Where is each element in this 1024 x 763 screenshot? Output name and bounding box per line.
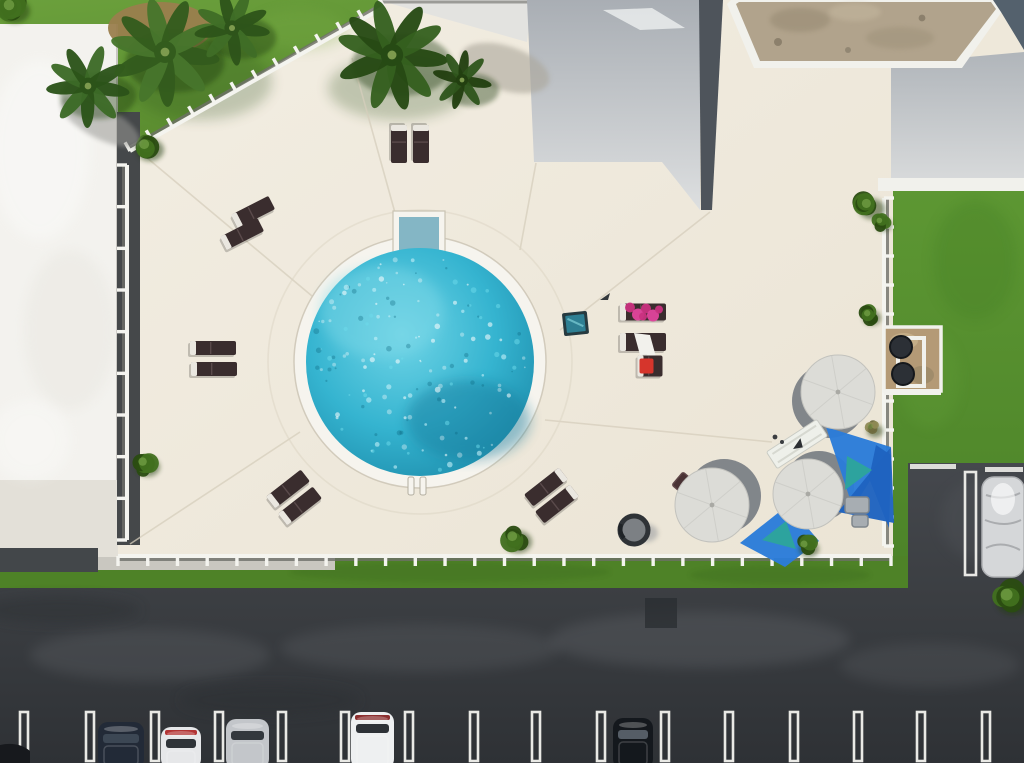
car-windshield — [103, 734, 139, 743]
sparkle — [418, 336, 420, 338]
sparkle — [365, 322, 368, 325]
sparkle — [406, 419, 408, 421]
car — [98, 722, 144, 763]
sparkle — [476, 445, 480, 449]
sparkle — [498, 384, 502, 388]
sparkle — [399, 431, 403, 435]
palm-crown-center — [85, 83, 92, 90]
sparkle — [442, 259, 444, 261]
sparkle — [388, 315, 390, 317]
sparkle — [453, 301, 457, 305]
lounge-chair — [636, 356, 663, 379]
sparkle — [512, 366, 516, 370]
lounger-headrest — [620, 333, 626, 351]
palm-crown-center — [161, 48, 170, 57]
bush-highlight — [507, 531, 517, 541]
car — [351, 712, 394, 763]
asphalt-patch — [645, 598, 677, 628]
sparkle — [467, 304, 469, 306]
aerial-photo-canvas — [0, 0, 1024, 763]
walkway-left — [0, 480, 118, 557]
car-hood-highlight — [619, 722, 647, 728]
sparkle — [329, 319, 332, 322]
umbrella-pole — [710, 503, 715, 508]
patio-umbrella — [801, 355, 875, 429]
side-table — [562, 311, 589, 336]
sparkle — [479, 316, 482, 319]
lounge-chair — [618, 303, 666, 323]
fire-pit — [620, 516, 648, 544]
sparkle — [522, 356, 525, 359]
sparkle — [455, 432, 458, 435]
sparkle — [386, 441, 390, 445]
sparkle — [488, 322, 493, 327]
palm-crown-center — [229, 25, 235, 31]
kettle-grill — [892, 363, 914, 385]
bush-highlight — [801, 541, 808, 548]
sparkle — [382, 395, 387, 400]
sparkle — [424, 423, 427, 426]
car-roof — [232, 743, 263, 763]
tarp-highlight — [991, 483, 1015, 515]
sparkle — [387, 409, 392, 414]
small-dot — [780, 440, 784, 444]
sparkle — [411, 258, 415, 262]
kettle-grill — [890, 336, 912, 358]
car-windshield — [618, 730, 648, 739]
umbrella-pole — [836, 390, 841, 395]
sparkle — [358, 316, 363, 321]
sparkle — [371, 449, 375, 453]
lounger-headrest — [391, 125, 407, 131]
bush — [0, 0, 30, 23]
sparkle — [375, 303, 377, 305]
sparkle — [344, 327, 348, 331]
sparkle — [415, 337, 417, 339]
sparkle — [464, 353, 468, 357]
sparkle — [320, 368, 323, 371]
sparkle — [447, 462, 453, 468]
bush-highlight — [1001, 589, 1013, 601]
sparkle — [461, 310, 464, 313]
sparkle — [389, 366, 393, 370]
sparkle — [460, 333, 464, 337]
lounge-chair — [188, 341, 236, 357]
sparkle — [321, 320, 324, 323]
sparkle — [345, 352, 349, 356]
sparkle — [380, 263, 382, 265]
sparkle — [315, 366, 319, 370]
sparkle — [325, 380, 327, 382]
lounge-chair — [411, 123, 429, 163]
parking-stall-line-horizontal — [910, 464, 956, 469]
sparkle — [427, 382, 432, 387]
sparkle — [435, 387, 441, 393]
sparkle — [375, 442, 380, 447]
car — [613, 718, 653, 763]
car-roof — [357, 736, 388, 763]
sparkle — [373, 353, 375, 355]
walkway-shadow — [0, 548, 98, 572]
sparkle — [402, 444, 407, 449]
sparkle — [457, 452, 462, 457]
sparkle — [417, 300, 419, 302]
sparkle — [436, 313, 439, 316]
sparkle — [332, 356, 336, 360]
car-windshield — [231, 731, 264, 740]
car-roof — [167, 751, 195, 763]
sparkle — [501, 354, 506, 359]
sparkle — [386, 297, 389, 300]
bush-highlight — [877, 218, 883, 224]
sparkle — [491, 444, 493, 446]
bush-highlight — [862, 199, 871, 208]
sparkle — [470, 380, 474, 384]
sparkle — [339, 294, 341, 296]
car-hood-highlight — [357, 716, 388, 722]
sparkle — [450, 364, 454, 368]
sparkle — [494, 352, 499, 357]
car — [161, 727, 201, 763]
sparkle — [363, 365, 367, 369]
sparkle — [361, 405, 364, 408]
sparkle — [362, 389, 365, 392]
sparkle — [498, 388, 502, 392]
sparkle — [372, 288, 376, 292]
sparkle — [507, 393, 511, 397]
sparkle — [374, 337, 378, 341]
sparkle — [441, 399, 445, 403]
sparkle — [489, 412, 492, 415]
sparkle — [344, 285, 349, 290]
sparkle — [445, 454, 448, 457]
sparkle — [386, 346, 392, 352]
sparkle — [366, 277, 370, 281]
sparkle — [415, 272, 417, 274]
sparkle — [407, 452, 410, 455]
pink-towel — [655, 306, 663, 314]
lounger-headrest — [190, 341, 196, 355]
lounger-headrest — [413, 125, 429, 131]
sparkle — [370, 357, 375, 362]
sparkle — [329, 299, 334, 304]
sparkle — [361, 359, 365, 363]
car-hood-highlight — [232, 723, 263, 729]
patio-umbrella — [773, 459, 843, 529]
sparkle — [445, 421, 450, 426]
sparkle — [453, 279, 458, 284]
car-roof — [104, 746, 138, 763]
car-roof — [619, 742, 647, 763]
lounge-chair — [189, 362, 237, 378]
sparkle — [514, 339, 520, 345]
sparkle — [485, 334, 491, 340]
sparkle — [396, 272, 399, 275]
sparkle — [420, 361, 422, 363]
equipment-box — [845, 497, 869, 513]
sparkle — [374, 433, 377, 436]
sparkle — [408, 415, 413, 420]
sparkle — [416, 388, 418, 390]
sparkle — [467, 284, 469, 286]
sparkle — [471, 287, 477, 293]
parking-stall-line-horizontal — [985, 467, 1023, 472]
sparkle — [483, 447, 485, 449]
sparkle — [482, 384, 485, 387]
sparkle — [454, 406, 456, 408]
sparkle — [477, 316, 479, 318]
bush-highlight — [138, 457, 146, 465]
sparkle — [313, 328, 319, 334]
sparkle — [401, 357, 403, 359]
sparkle — [332, 306, 336, 310]
sparkle — [465, 437, 468, 440]
sparkle — [394, 465, 398, 469]
sparkle — [485, 289, 489, 293]
right-roof-eave-trim — [878, 178, 1024, 191]
sparkle — [352, 289, 357, 294]
lounger-headrest — [620, 304, 626, 321]
sparkle — [393, 257, 398, 262]
bush-highlight — [4, 0, 15, 10]
sparkle — [464, 359, 468, 363]
sparkle — [437, 397, 441, 401]
car-windshield — [166, 739, 196, 748]
lounge-chair — [389, 123, 407, 163]
sparkle — [396, 359, 400, 363]
sparkle — [336, 416, 339, 419]
sparkle — [442, 366, 446, 370]
sparkle — [328, 368, 332, 372]
aerial-pool-photo — [0, 0, 1024, 763]
umbrella-pole — [806, 492, 811, 497]
sparkle — [318, 321, 320, 323]
palm-crown-center — [460, 78, 465, 83]
sparkle — [358, 283, 361, 286]
sparkle — [340, 428, 343, 431]
sparkle — [438, 468, 442, 472]
sparkle — [471, 337, 476, 342]
lounger-body — [191, 362, 237, 376]
grill-curb — [884, 389, 941, 395]
sparkle — [511, 371, 513, 373]
sparkle — [366, 397, 371, 402]
sparkle — [524, 367, 526, 369]
sparkle — [316, 348, 322, 354]
small-dot — [773, 435, 778, 440]
sparkle — [429, 369, 432, 372]
sparkle — [418, 278, 422, 282]
ladder-rail — [408, 477, 414, 495]
lounger-body — [190, 341, 236, 355]
sparkle — [335, 367, 337, 369]
sparkle — [403, 396, 406, 399]
bbq-grill-station — [884, 327, 941, 395]
sparkle — [445, 267, 447, 269]
sparkle — [450, 382, 453, 385]
sparkle — [496, 304, 500, 308]
sparkle — [517, 332, 521, 336]
bush-highlight — [139, 139, 149, 149]
sparkle — [348, 394, 350, 396]
sparkle — [332, 363, 336, 367]
pink-towel — [639, 313, 647, 321]
sparkle — [477, 451, 482, 456]
sparkle — [386, 282, 388, 284]
sparkle — [482, 374, 485, 377]
sparkle — [342, 291, 347, 296]
lounger-headrest — [191, 362, 197, 376]
sparkle — [408, 393, 413, 398]
sparkle — [440, 436, 445, 441]
tarp-covered-car — [982, 477, 1024, 577]
right-building-roof — [891, 52, 1024, 182]
sparkle — [379, 276, 384, 281]
sparkle — [386, 384, 391, 389]
car-windshield — [356, 724, 389, 733]
sparkle — [422, 449, 424, 451]
car-hood-highlight — [167, 731, 195, 737]
bush-highlight — [864, 310, 870, 316]
sparkle — [377, 267, 380, 270]
sparkle — [369, 314, 373, 318]
sparkle — [363, 393, 367, 397]
sparkle — [394, 316, 396, 318]
palm-crown-center — [388, 51, 397, 60]
equipment-box — [852, 515, 868, 527]
sparkle — [499, 339, 502, 342]
bush-highlight — [868, 424, 874, 430]
sparkle — [404, 416, 407, 419]
sparkle — [343, 354, 346, 357]
sparkle — [435, 324, 441, 330]
car-hood-highlight — [104, 726, 138, 732]
sparkle — [403, 284, 405, 286]
sparkle — [431, 339, 435, 343]
sparkle — [376, 315, 380, 319]
car — [226, 719, 269, 763]
sparkle — [406, 344, 411, 349]
patio-umbrella — [675, 468, 749, 542]
sparkle — [390, 300, 396, 306]
red-towel — [640, 359, 654, 374]
ladder-rail — [420, 477, 426, 495]
sparkle — [327, 356, 332, 361]
